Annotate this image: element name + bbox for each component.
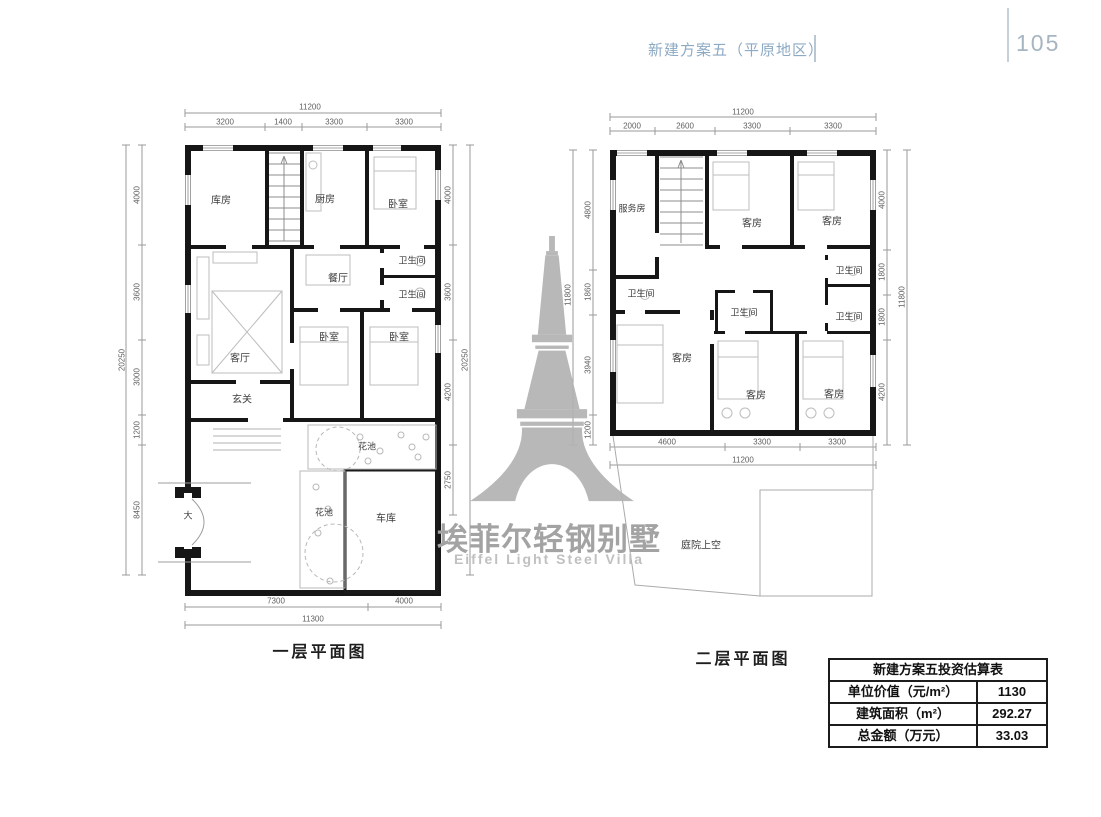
room-label-bedroom: 卧室 xyxy=(319,329,339,344)
dim-label: 3000 xyxy=(133,368,142,386)
dim-label: 4000 xyxy=(444,186,453,204)
table-row-label: 单位价值（元/m²） xyxy=(830,682,978,702)
dim-label: 1400 xyxy=(274,118,292,127)
room-label-bedroom: 卧室 xyxy=(388,196,408,211)
room-label-service: 服务房 xyxy=(618,202,645,215)
table-row-value: 292.27 xyxy=(978,704,1046,724)
dim-label: 4200 xyxy=(444,383,453,401)
table-row-label: 建筑面积（m²） xyxy=(830,704,978,724)
dim-label: 3600 xyxy=(133,283,142,301)
dim-label: 3600 xyxy=(444,283,453,301)
table-row-label: 总金额（万元） xyxy=(830,726,978,746)
room-label-bathroom: 卫生间 xyxy=(398,254,425,267)
dim-label: 1800 xyxy=(878,308,887,326)
dim-label: 3300 xyxy=(395,118,413,127)
dim-label: 3300 xyxy=(743,122,761,131)
header-divider-bar xyxy=(814,35,816,62)
dim-label: 2750 xyxy=(444,471,453,489)
room-label-living: 客厅 xyxy=(230,350,250,365)
table-row: 总金额（万元） 33.03 xyxy=(830,726,1046,746)
dim-label: 11800 xyxy=(898,286,907,308)
estimate-table-title: 新建方案五投资估算表 xyxy=(830,660,1046,682)
first-floor-caption: 一层平面图 xyxy=(272,638,367,662)
dim-label: 3300 xyxy=(753,438,771,447)
dim-label: 20250 xyxy=(118,349,127,371)
dim-label: 1800 xyxy=(878,263,887,281)
first-floor-plan-drawing xyxy=(118,95,478,675)
dim-label: 11300 xyxy=(302,615,324,624)
dim-label: 3300 xyxy=(325,118,343,127)
table-row-value: 33.03 xyxy=(978,726,1046,746)
page-number: 105 xyxy=(1016,30,1060,57)
dim-label: 3300 xyxy=(824,122,842,131)
dim-label: 4200 xyxy=(878,383,887,401)
room-label-guest: 客房 xyxy=(822,213,842,228)
table-row: 单位价值（元/m²） 1130 xyxy=(830,682,1046,704)
room-label-garage: 车库 xyxy=(376,510,396,525)
room-label-bathroom: 卫生间 xyxy=(730,306,757,319)
dim-label: 8450 xyxy=(133,501,142,519)
dim-label: 4600 xyxy=(658,438,676,447)
investment-estimate-table: 新建方案五投资估算表 单位价值（元/m²） 1130 建筑面积（m²） 292.… xyxy=(828,658,1048,748)
page-header-title: 新建方案五（平原地区） xyxy=(648,39,824,60)
room-label-bathroom: 卫生间 xyxy=(835,310,862,323)
first-floor-plan: 11200 3200 1400 3300 3300 4000 3600 3000… xyxy=(118,95,478,675)
room-label-courtyard: 庭院上空 xyxy=(681,537,721,552)
dim-label: 7300 xyxy=(267,597,285,606)
dim-label: 2600 xyxy=(676,122,694,131)
room-label-guest: 客房 xyxy=(746,387,766,402)
dim-label: 11200 xyxy=(732,108,754,117)
room-label-entry: 玄关 xyxy=(232,391,252,406)
second-floor-caption: 二层平面图 xyxy=(695,645,790,669)
room-label-guest: 客房 xyxy=(672,350,692,365)
page-number-rule xyxy=(1007,8,1009,62)
dim-label: 2000 xyxy=(623,122,641,131)
dim-label: 3200 xyxy=(216,118,234,127)
watermark-english-text: Eiffel Light Steel Villa xyxy=(454,551,644,567)
room-label-guest: 客房 xyxy=(824,386,844,401)
dim-label: 4000 xyxy=(395,597,413,606)
room-label-flowerbed: 花池 xyxy=(358,440,376,453)
table-row-value: 1130 xyxy=(978,682,1046,702)
room-label-bathroom: 卫生间 xyxy=(398,288,425,301)
room-label-gate: 大 xyxy=(183,509,192,522)
dim-label: 4000 xyxy=(133,186,142,204)
room-label-flowerbed: 花池 xyxy=(315,506,333,519)
dim-label: 1200 xyxy=(133,421,142,439)
room-label-storage: 库房 xyxy=(211,192,231,207)
room-label-bathroom: 卫生间 xyxy=(835,264,862,277)
room-label-dining: 餐厅 xyxy=(328,270,348,285)
room-label-guest: 客房 xyxy=(742,215,762,230)
book-page: 新建方案五（平原地区） 105 xyxy=(0,0,1101,817)
eiffel-tower-watermark-logo xyxy=(468,236,636,512)
dim-label: 3300 xyxy=(828,438,846,447)
room-label-kitchen: 厨房 xyxy=(315,191,335,206)
table-row: 建筑面积（m²） 292.27 xyxy=(830,704,1046,726)
dim-label: 11200 xyxy=(299,103,321,112)
dim-label: 4800 xyxy=(584,201,593,219)
room-label-bedroom: 卧室 xyxy=(389,329,409,344)
dim-label: 11200 xyxy=(732,456,754,465)
dim-label: 4000 xyxy=(878,191,887,209)
